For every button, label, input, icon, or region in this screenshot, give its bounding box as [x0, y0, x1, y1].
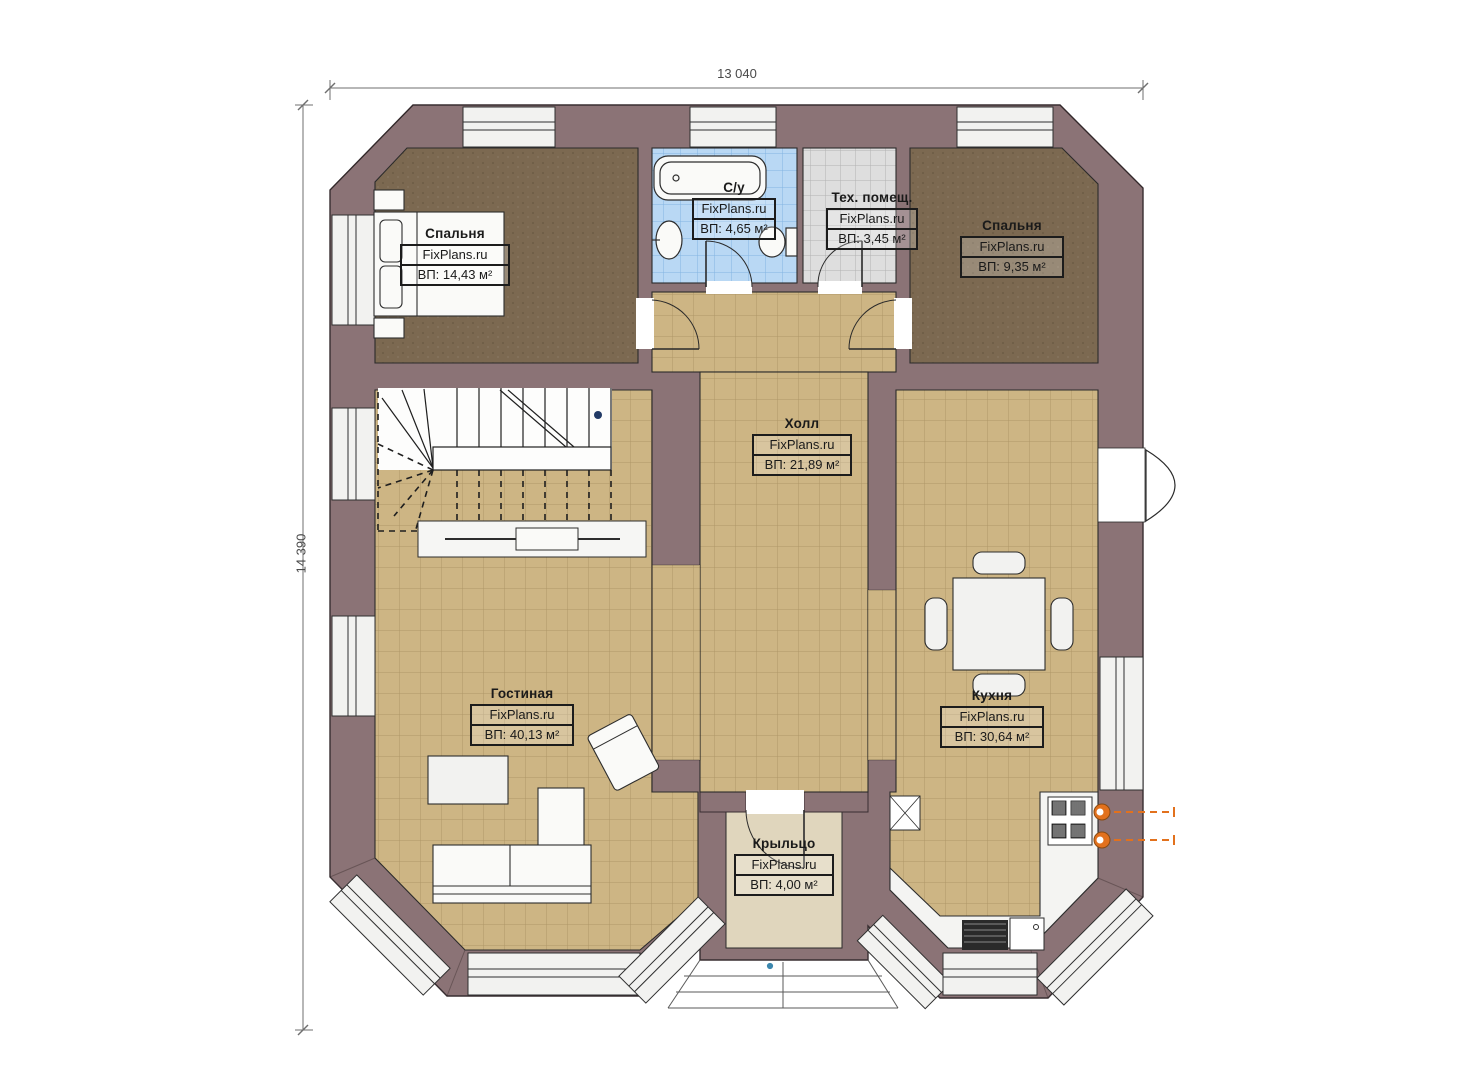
floor-opening-kitchen [868, 590, 896, 760]
stove-icon [1048, 797, 1092, 845]
room-area: ВП: 30,64 м² [942, 726, 1042, 746]
floor-plan-drawing [0, 0, 1473, 1080]
room-label-bedroom-1: Спальня FixPlans.ru ВП: 14,43 м² [400, 226, 510, 286]
coffee-table-icon [428, 756, 508, 804]
room-label-tech-room: Тех. помещ. FixPlans.ru ВП: 3,45 м² [826, 190, 918, 250]
room-label-hall: Холл FixPlans.ru ВП: 21,89 м² [752, 416, 852, 476]
room-area: ВП: 3,45 м² [828, 228, 916, 248]
room-area: ВП: 9,35 м² [962, 256, 1062, 276]
room-label-bedroom-2: Спальня FixPlans.ru ВП: 9,35 м² [960, 218, 1064, 278]
watermark-text: FixPlans.ru [402, 246, 508, 264]
floor-opening-living [652, 565, 700, 760]
room-name: Кухня [940, 688, 1044, 703]
watermark-text: FixPlans.ru [962, 238, 1062, 256]
dimension-left-value: 14 390 [294, 534, 309, 574]
floor-hall-band [652, 292, 896, 372]
dimension-top-label: 13 040 [694, 66, 780, 81]
shaft-box [890, 796, 920, 830]
room-name: Крыльцо [734, 836, 834, 851]
kitchen-sink-icon [962, 918, 1044, 950]
room-area: ВП: 40,13 м² [472, 724, 572, 744]
radiator-icon [418, 521, 646, 557]
room-name: Холл [752, 416, 852, 431]
room-area: ВП: 21,89 м² [754, 454, 850, 474]
stair-marker-dot [594, 411, 602, 419]
entry-marker-dot [767, 963, 774, 970]
watermark-text: FixPlans.ru [736, 856, 832, 874]
room-label-bathroom: С/у FixPlans.ru ВП: 4,65 м² [692, 180, 776, 240]
room-name: Тех. помещ. [826, 190, 918, 205]
room-name: Гостиная [470, 686, 574, 701]
room-area: ВП: 4,00 м² [736, 874, 832, 894]
dimension-top-value: 13 040 [717, 66, 757, 81]
room-label-kitchen: Кухня FixPlans.ru ВП: 30,64 м² [940, 688, 1044, 748]
room-label-living: Гостиная FixPlans.ru ВП: 40,13 м² [470, 686, 574, 746]
watermark-text: FixPlans.ru [942, 708, 1042, 726]
watermark-text: FixPlans.ru [828, 210, 916, 228]
floor-plan-canvas: 13 040 14 390 Спальня FixPlans.ru ВП: 14… [0, 0, 1473, 1080]
room-label-porch: Крыльцо FixPlans.ru ВП: 4,00 м² [734, 836, 834, 896]
door-side-entrance [1098, 448, 1175, 522]
watermark-text: FixPlans.ru [472, 706, 572, 724]
room-name: Спальня [400, 226, 510, 241]
watermark-text: FixPlans.ru [754, 436, 850, 454]
room-name: Спальня [960, 218, 1064, 233]
room-area: ВП: 4,65 м² [694, 218, 774, 238]
room-area: ВП: 14,43 м² [402, 264, 508, 284]
room-name: С/у [692, 180, 776, 195]
porch-steps [668, 960, 898, 1008]
dimension-left-label: 14 390 [294, 509, 309, 599]
watermark-text: FixPlans.ru [694, 200, 774, 218]
